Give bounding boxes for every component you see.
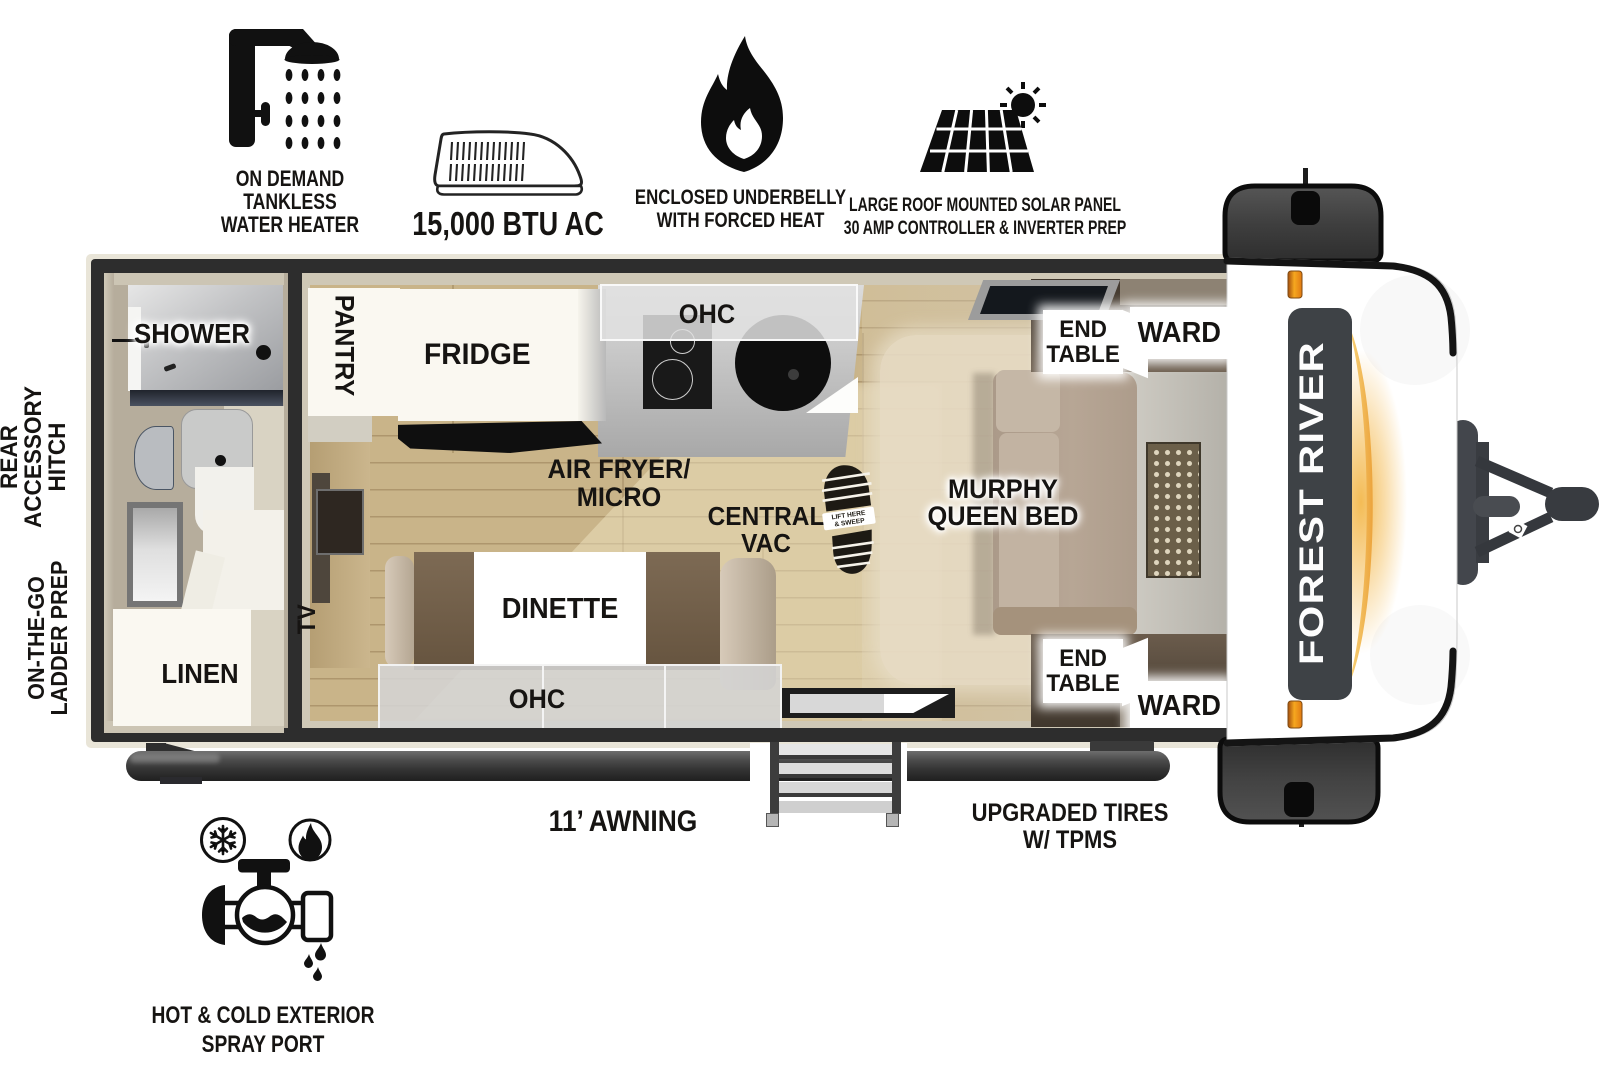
svg-text:FOREST RIVER: FOREST RIVER	[1293, 341, 1331, 665]
